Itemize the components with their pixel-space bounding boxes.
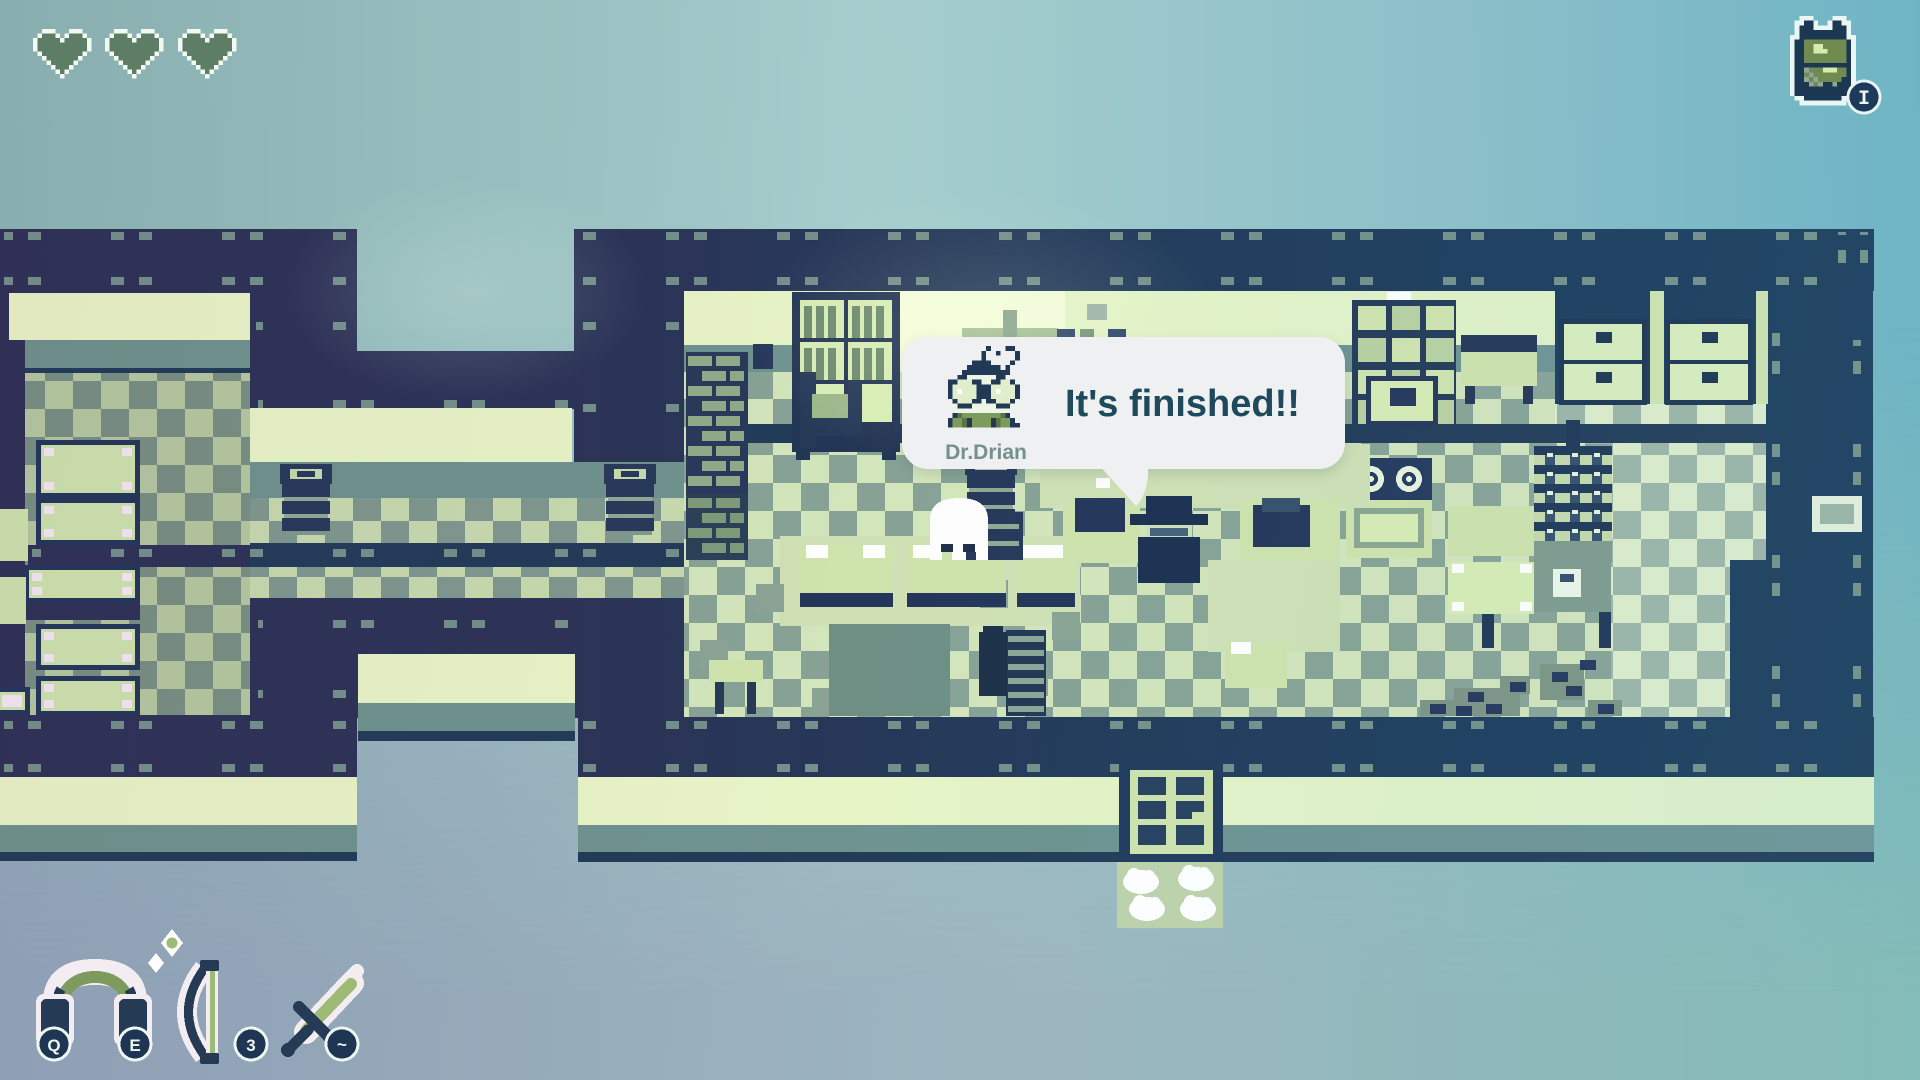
svg-text:3: 3 bbox=[246, 1036, 255, 1055]
svg-text:I: I bbox=[1858, 88, 1870, 111]
svg-text:~: ~ bbox=[337, 1035, 347, 1054]
svg-text:E: E bbox=[129, 1036, 140, 1055]
svg-text:Q: Q bbox=[47, 1036, 60, 1055]
